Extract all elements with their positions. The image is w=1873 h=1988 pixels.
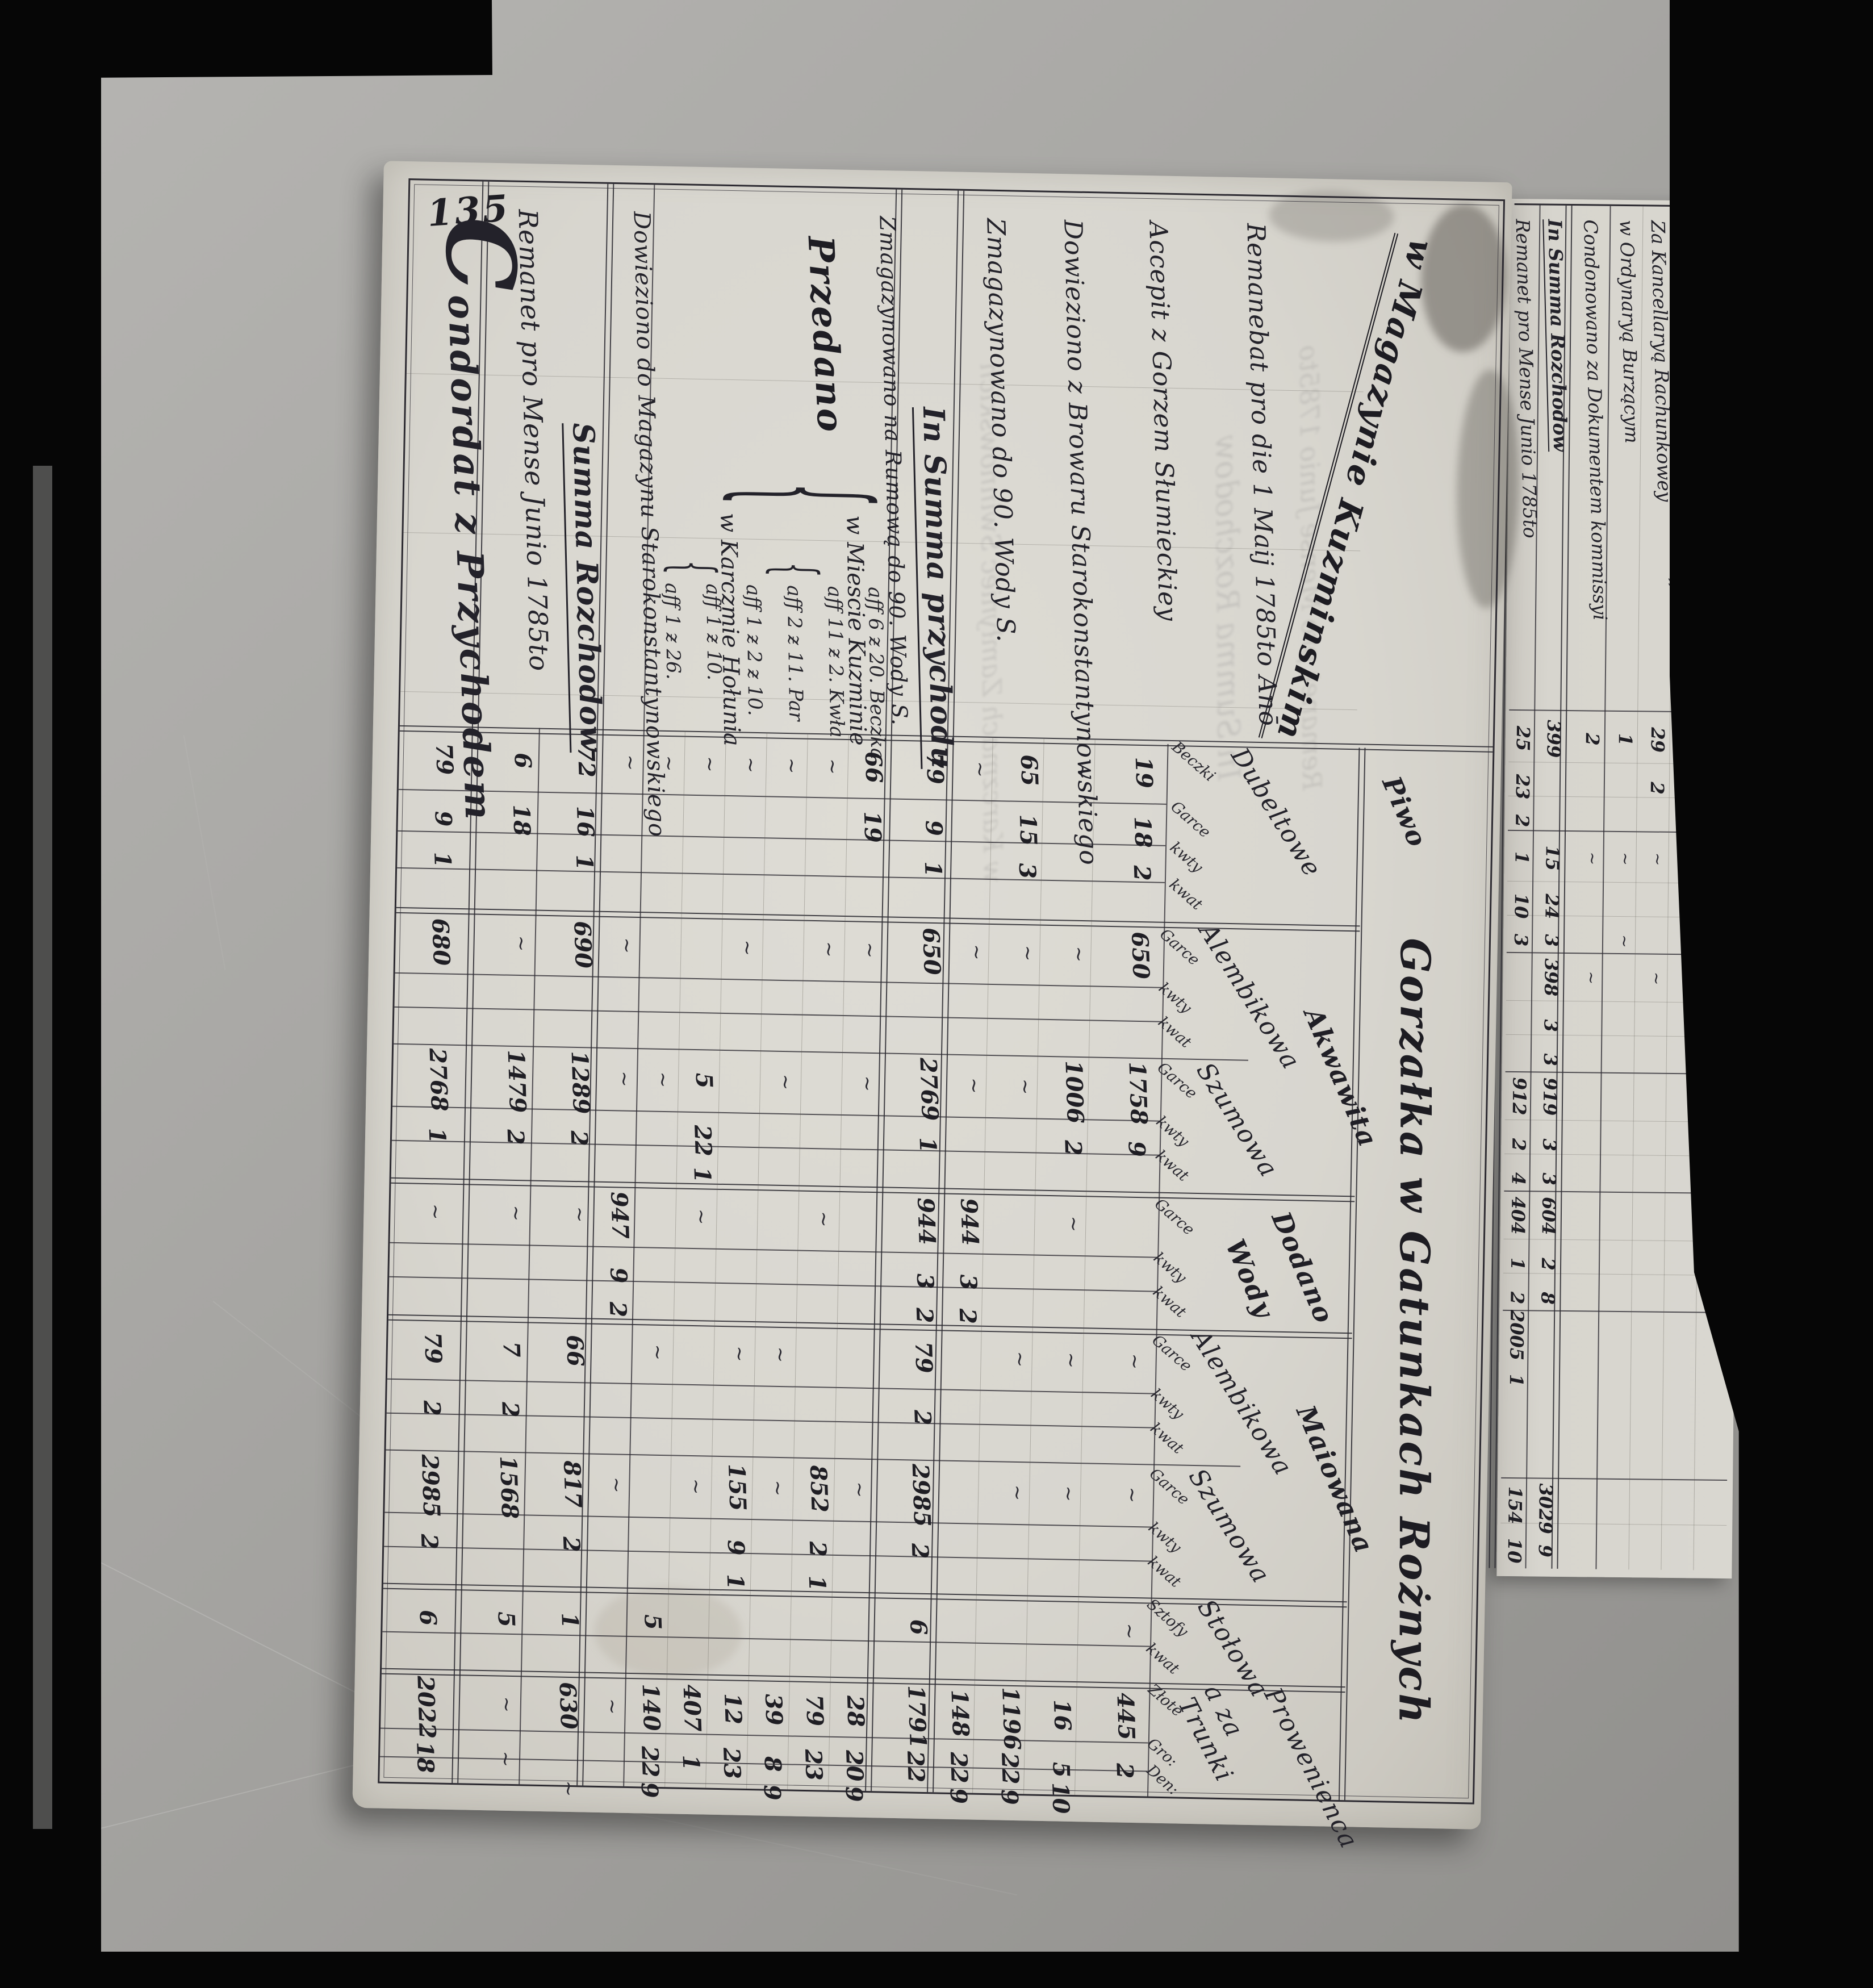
ditto-mark: ∼ [1056, 1466, 1080, 1521]
ditto-mark: ∼ [600, 1679, 624, 1734]
microfilm-scan: w Karczmach Zamłyniec / Swinnowskich aff… [0, 0, 1873, 1988]
row-label: w Ordynaryą Burzącym [1615, 220, 1643, 444]
ledger-cell: 29 [1646, 717, 1669, 762]
ledger-cell: 1 [919, 841, 947, 897]
ditto-mark: ∼ [739, 737, 763, 792]
ditto-mark: ∼ [1615, 919, 1634, 963]
ditto-mark: ∼ [1120, 1468, 1144, 1523]
ghost-showthrough-text: In Summa Rozchodow [1209, 435, 1247, 781]
ditto-mark: ∼ [651, 1053, 675, 1108]
ledger-cell: 1 [428, 832, 457, 888]
ledger-cell: 2022 [412, 1675, 440, 1731]
ledger-cell: 604 [1538, 1193, 1560, 1238]
ditto-mark: ∼ [962, 1058, 986, 1113]
ledger-cell: 1 [423, 1108, 451, 1164]
ledger-cell: 2 [415, 1514, 444, 1569]
ditto-mark: ∼ [568, 1187, 592, 1242]
ditto-mark: ∼ [1616, 837, 1635, 881]
ditto-mark: ∼ [768, 1327, 792, 1383]
film-edge-top [0, 0, 492, 78]
row-label: Condonowano za Dokumentem kommissyi [1579, 219, 1611, 621]
ledger-cell: 3029 [1535, 1483, 1557, 1527]
ledger-cell: 140 [637, 1680, 665, 1735]
ledger-cell: 2 [557, 1517, 586, 1572]
ledger-cell: 1 [803, 1556, 831, 1611]
ditto-mark: ∼ [1061, 1196, 1085, 1251]
unit-kwat: kwat [1143, 1640, 1182, 1678]
ledger-cell: 1568 [495, 1455, 523, 1511]
ditto-mark: ∼ [689, 1189, 713, 1244]
ledger-cell: 28 [841, 1684, 869, 1739]
brace: { [760, 562, 829, 578]
price-note: aff 11 ƶ 2. Kwła [823, 586, 848, 738]
ledger-cell: 9 [1122, 1121, 1151, 1177]
ledger-cell: 9 [1534, 1528, 1556, 1573]
ledger-cell: 5 [638, 1594, 667, 1650]
ledger-cell: 3 [1013, 843, 1042, 899]
ledger-cell: 944 [955, 1195, 984, 1250]
ledger-cell: 79 [419, 1320, 447, 1376]
ledger-cell: 1196 [997, 1686, 1025, 1742]
ledger-cell: 9 [839, 1766, 868, 1822]
ledger-cell: 1006 [1060, 1060, 1088, 1116]
ledger-cell: 2 [501, 1109, 529, 1165]
brace: { [658, 560, 726, 576]
ditto-mark: ∼ [1582, 955, 1601, 1000]
unit-kwty: kwty [1155, 979, 1195, 1017]
ditto-mark: ∼ [1647, 956, 1666, 1000]
ditto-mark: ∼ [780, 738, 804, 793]
ledger-cell: 650 [1126, 928, 1155, 983]
ledger-cell: 2 [1581, 717, 1603, 761]
ledger-cell: 9 [635, 1763, 663, 1818]
ledger-cell: 1 [721, 1554, 750, 1610]
ledger-cell: 154 [1504, 1483, 1526, 1527]
column-name-szumowa: Szumowa [1190, 1058, 1283, 1183]
unit-kwty: kwty [1147, 1385, 1187, 1423]
ledger-cell: 79 [430, 732, 458, 787]
unit-kwat: kwat [1152, 1147, 1191, 1185]
column-name-alembikowa: Alembikowa [1193, 918, 1306, 1075]
ledger-row: Zmagazynowano na Rumową do 90. Wody S. P… [625, 185, 900, 1791]
ledger-cell: 23 [799, 1737, 827, 1793]
ledger-cell: 9 [758, 1765, 786, 1820]
ledger-cell: 2 [565, 1110, 593, 1166]
ledger-cell: 16 [1048, 1688, 1076, 1743]
ditto-mark: ∼ [965, 925, 989, 980]
ledger-cell: 1791 [902, 1685, 931, 1740]
ditto-mark: ∼ [847, 1462, 871, 1517]
ditto-mark: ∼ [821, 739, 844, 794]
price-note: aff 1 ƶ 10. [701, 583, 726, 680]
ditto-mark: ∼ [774, 1055, 797, 1110]
ledger-cell: 23 [717, 1736, 746, 1791]
ditto-mark: ∼ [509, 916, 533, 971]
ledger-cell: 148 [946, 1685, 974, 1741]
ditto-mark: ∼ [424, 1184, 448, 1239]
ledger-cell: 6 [904, 1599, 933, 1655]
table-title: w Magazynie Kuzminskim [1259, 233, 1441, 750]
ledger-cell: 12 [718, 1681, 747, 1737]
column-name-szumowa: Szumowa [1183, 1464, 1276, 1589]
row-label: Remanebat pro die 1 Maij 1785to Anō [1241, 223, 1282, 726]
ledger-cell: 2 [1128, 845, 1156, 901]
ledger-cell: 65 [1015, 742, 1043, 798]
ledger-cell: 399 [1542, 717, 1565, 761]
column-group-maiowana: Maiowana [1290, 1401, 1380, 1558]
ditto-mark: ∼ [735, 920, 759, 975]
ledger-cell: 680 [427, 914, 455, 970]
ledger-cell: 2 [906, 1523, 934, 1579]
column-group-dodano-wody: Wody [1220, 1235, 1280, 1323]
unit-kwat: kwat [1166, 875, 1206, 913]
ledger-cell: 7 [497, 1322, 525, 1377]
unit-kwat: kwat [1147, 1419, 1186, 1457]
ledger-cell: 2 [908, 1390, 936, 1446]
ledger-cell: 398 [1540, 955, 1562, 1000]
unit-denary: Den: [1143, 1761, 1182, 1799]
ditto-mark: ∼ [646, 1325, 670, 1380]
ledger-cell: 2 [1646, 766, 1668, 810]
ledger-cell: 5 [689, 1053, 718, 1109]
ledger-cell: 6 [413, 1590, 442, 1645]
ditto-mark: ∼ [612, 1051, 636, 1106]
ditto-mark: ∼ [817, 922, 841, 977]
ledger-cell: 9 [995, 1769, 1023, 1825]
ledger-cell: 2 [954, 1289, 982, 1344]
ledger-cell: 630 [554, 1678, 582, 1734]
price-note: aff 1 ƶ 2 ƶ 10. [742, 584, 767, 716]
ledger-cell: 66 [561, 1323, 589, 1379]
header-rule-double [1339, 747, 1366, 1800]
ditto-mark: ∼ [604, 1457, 628, 1513]
ledger-cell: 19 [858, 799, 887, 855]
ledger-cell: 9 [944, 1768, 972, 1824]
ledger-cell: 1 [555, 1593, 584, 1648]
ledger-cell: 445 [1111, 1689, 1140, 1744]
ledger-cell: 10 [1046, 1770, 1075, 1826]
ditto-mark: ∼ [1008, 1332, 1032, 1387]
ledger-cell: 18 [411, 1730, 439, 1785]
ledger-cell: 690 [568, 917, 597, 972]
unit-garce: Garce [1167, 798, 1214, 842]
ledger-table: Remanet pro Mense Junio 1785to In Summa … [378, 178, 1505, 1805]
brace: { [708, 481, 902, 508]
film-edge-bottom [0, 1952, 1873, 1988]
film-slit [33, 466, 52, 1829]
ledger-cell: 919 [1539, 1075, 1561, 1119]
ditto-mark: ∼ [858, 922, 882, 978]
ledger-cell: 2769 [914, 1057, 943, 1113]
ledger-cell: 66 [859, 740, 888, 795]
ditto-mark: ∼ [1123, 1334, 1147, 1389]
ledger-cell: 2 [1110, 1743, 1139, 1799]
column-group-heading-gorzalka: Gorzałka w Gatunkach Rożnych [1390, 938, 1440, 1801]
column-group-akwawita: Akwawita [1298, 1003, 1383, 1152]
ledger-cell: 407 [678, 1680, 706, 1736]
ledger-cell: 2 [496, 1382, 524, 1438]
ditto-mark: ∼ [812, 1192, 835, 1247]
ledger-cell: 2768 [424, 1048, 453, 1104]
unit-kwty: kwty [1145, 1519, 1185, 1556]
ledger-page: 135 Remanet pro Mense Junio 1785to In Su… [352, 161, 1512, 1830]
ledger-cell: 1289 [566, 1050, 595, 1106]
ledger-cell: 912 [1508, 1074, 1531, 1118]
ditto-mark: ∼ [615, 918, 639, 973]
film-edge-right [1670, 0, 1873, 1988]
unit-kwat: kwat [1144, 1553, 1184, 1591]
row-label: In Summa Rozchodow [1542, 219, 1571, 452]
ledger-cell: 2 [417, 1380, 446, 1436]
ledger-cell: 944 [912, 1193, 940, 1249]
ledger-cell: 19 [1130, 745, 1158, 800]
ledger-cell: 1479 [503, 1049, 531, 1105]
ledger-cell: 2005 [1506, 1310, 1528, 1354]
ledger-cell: 1 [1506, 1358, 1528, 1402]
ledger-cell: 155 [723, 1460, 751, 1515]
ditto-mark: ∼ [495, 1677, 519, 1732]
column-group-piwo: Piwo [1376, 772, 1433, 852]
column-name-alembikowa: Alembikowa [1185, 1325, 1298, 1481]
ledger-cell: 1 [1511, 836, 1533, 880]
ledger-cell: 817 [558, 1456, 587, 1512]
ledger-cell: 1 [676, 1735, 705, 1790]
unit-kwty: kwty [1150, 1249, 1190, 1287]
ditto-mark: ∼ [1648, 837, 1667, 881]
ditto-mark: ∼ [494, 1731, 517, 1786]
ledger-cell: 72 [572, 734, 600, 790]
ledger-cell: 1758 [1123, 1061, 1152, 1117]
ditto-mark: ∼ [1118, 1603, 1142, 1659]
ledger-cell: 5 [492, 1592, 520, 1647]
ledger-cell: 15 [1541, 836, 1563, 880]
ledger-cell: 2985 [416, 1454, 445, 1509]
ditto-mark: ∼ [766, 1461, 789, 1516]
ledger-cell: 2 [1059, 1120, 1087, 1176]
ditto-mark: ∼ [1013, 1059, 1037, 1114]
row-label: In Summa przychodu [912, 406, 960, 769]
ditto-mark: ∼ [1067, 927, 1091, 982]
price-note: aff 6 ƶ 20. Beczka [863, 587, 889, 760]
ledger-cell: 79 [909, 1330, 938, 1385]
ditto-mark: ∼ [557, 1761, 580, 1816]
ledger-cell: 1 [570, 834, 599, 890]
ledger-cell: 1 [1614, 717, 1636, 762]
ledger-cell: 1 [913, 1117, 942, 1173]
ledger-cell: 2985 [907, 1463, 935, 1519]
ledger-cell: 79 [800, 1683, 829, 1739]
ledger-cell: 852 [805, 1461, 833, 1517]
ledger-cell: 79 [921, 741, 949, 796]
unit-kwat: kwat [1149, 1283, 1189, 1321]
ledger-cell: 947 [605, 1188, 634, 1243]
ledger-cell: 39 [759, 1682, 788, 1738]
ledger-cell: 25 [1512, 716, 1534, 761]
ditto-mark: ∼ [968, 742, 992, 797]
price-note: aff 2 ƶ 11. Par [783, 585, 808, 721]
ditto-mark: ∼ [1016, 926, 1040, 981]
przedano-label: Przedano [800, 235, 852, 435]
ditto-mark: ∼ [1005, 1465, 1029, 1521]
scratch-line [183, 735, 226, 970]
ledger-cell: 3 [1510, 918, 1532, 962]
unit-kwty: kwty [1153, 1113, 1193, 1150]
ditto-mark: ∼ [504, 1186, 528, 1241]
ditto-mark: ∼ [1059, 1333, 1083, 1388]
ledger-cell: 22 [901, 1739, 930, 1795]
ditto-mark: ∼ [1583, 836, 1602, 880]
ledger-cell: 650 [917, 924, 946, 979]
unit-kwty: kwty [1167, 839, 1206, 876]
ditto-mark: ∼ [855, 1056, 879, 1111]
row-label: Summa Rozchodow [562, 423, 608, 753]
ledger-cell: 10 [1503, 1528, 1525, 1573]
unit-kwat: kwat [1155, 1013, 1194, 1051]
ledger-cell: 8 [1537, 1276, 1559, 1320]
ditto-mark: ∼ [618, 735, 642, 790]
column-group-proweniencya: Prowenienca [1258, 1683, 1364, 1853]
ditto-mark: ∼ [698, 737, 722, 792]
ditto-mark: ∼ [684, 1459, 708, 1514]
ledger-cell: 2 [604, 1282, 632, 1338]
ledger-cell: 404 [1507, 1193, 1529, 1238]
ditto-mark: ∼ [728, 1326, 751, 1381]
